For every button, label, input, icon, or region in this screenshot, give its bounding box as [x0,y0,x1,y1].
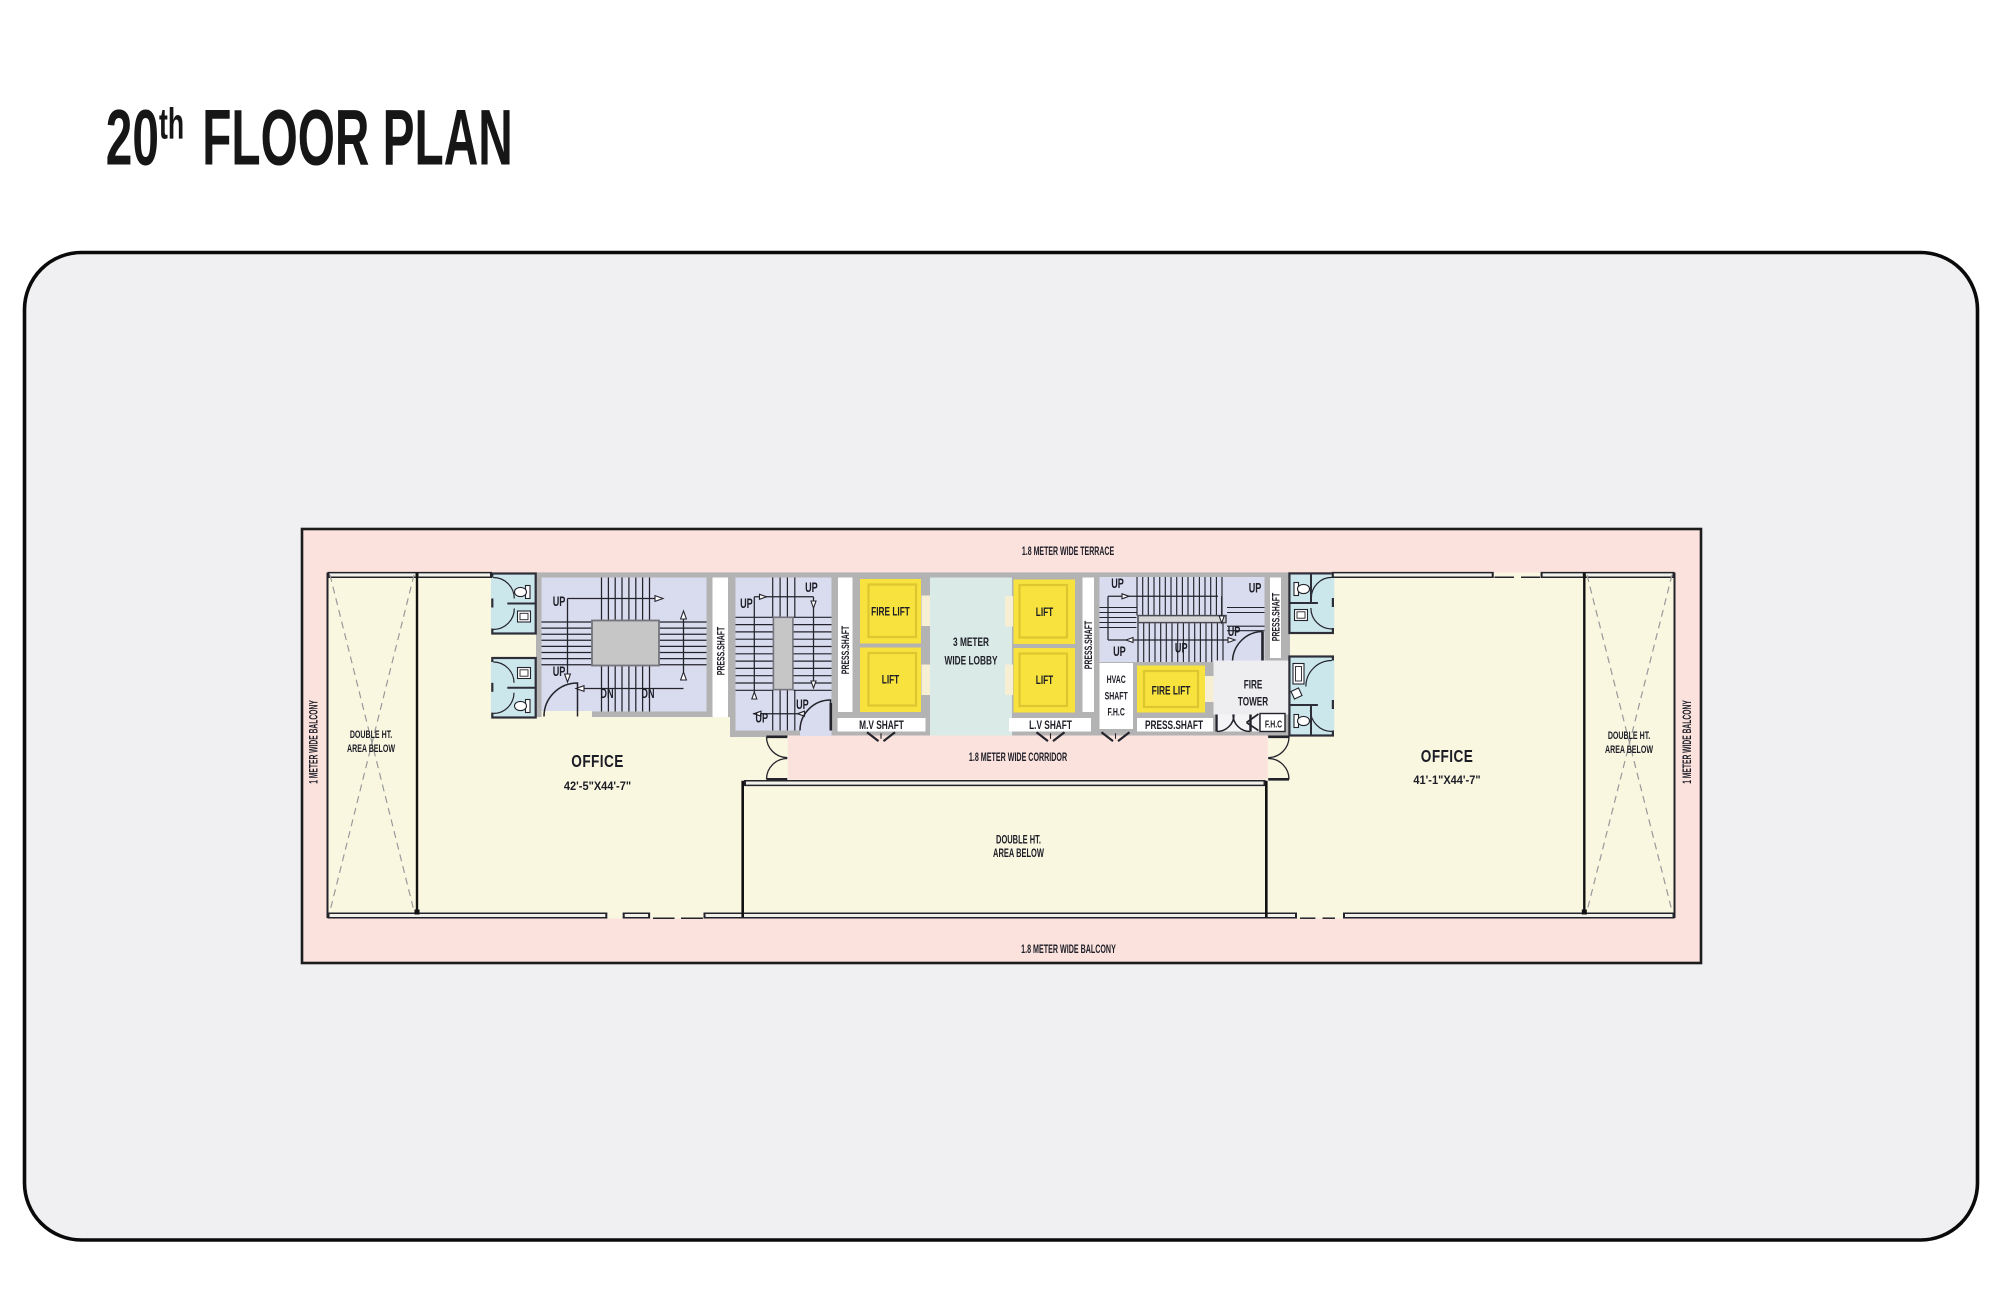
svg-text:OFFICE: OFFICE [1421,748,1473,767]
svg-text:1.8 METER WIDE BALCONY: 1.8 METER WIDE BALCONY [1021,943,1116,956]
svg-text:1 METER WIDE BALCONY: 1 METER WIDE BALCONY [307,700,320,784]
svg-text:FIRE LIFT: FIRE LIFT [871,606,910,619]
svg-text:1 METER WIDE BALCONY: 1 METER WIDE BALCONY [1680,700,1693,784]
svg-text:42'-5"X44'-7": 42'-5"X44'-7" [564,781,631,793]
svg-text:L.V SHAFT: L.V SHAFT [1029,720,1072,733]
svg-text:F.H.C: F.H.C [1265,718,1283,730]
svg-text:PRESS.SHAFT: PRESS.SHAFT [1083,620,1095,669]
svg-text:DOUBLE HT.: DOUBLE HT. [996,834,1041,847]
svg-text:PRESS.SHAFT: PRESS.SHAFT [1145,720,1204,733]
svg-text:41'-1"X44'-7": 41'-1"X44'-7" [1413,775,1480,787]
svg-text:UP: UP [755,710,768,727]
svg-text:WIDE LOBBY: WIDE LOBBY [945,655,998,668]
svg-text:SHAFT: SHAFT [1105,690,1128,702]
svg-text:UP: UP [805,579,818,596]
svg-text:AREA BELOW: AREA BELOW [347,742,395,755]
svg-text:FIRE LIFT: FIRE LIFT [1152,685,1191,698]
svg-text:UP: UP [1175,639,1188,656]
svg-text:DOUBLE HT.: DOUBLE HT. [350,728,392,741]
svg-text:HVAC: HVAC [1107,673,1126,685]
svg-text:UP: UP [553,593,566,610]
svg-text:PRESS.SHAFT: PRESS.SHAFT [715,626,727,675]
svg-text:UP: UP [1228,623,1241,640]
svg-text:UP: UP [740,595,753,612]
svg-text:UP: UP [1111,575,1124,592]
svg-text:DN: DN [600,685,613,702]
svg-text:PRESS.SHAFT: PRESS.SHAFT [840,625,852,674]
svg-text:DN: DN [641,685,654,702]
svg-text:UP: UP [796,696,809,713]
svg-text:DOUBLE HT.: DOUBLE HT. [1608,729,1650,742]
svg-text:UP: UP [553,663,566,680]
svg-text:UP: UP [1113,643,1126,660]
svg-text:PRESS.SHAFT: PRESS.SHAFT [1270,592,1282,641]
svg-text:3 METER: 3 METER [953,637,989,650]
svg-text:AREA BELOW: AREA BELOW [993,847,1044,860]
svg-text:LIFT: LIFT [882,674,900,687]
svg-text:1.8 METER WIDE TERRACE: 1.8 METER WIDE TERRACE [1022,545,1115,558]
svg-text:OFFICE: OFFICE [571,753,623,772]
svg-text:M.V SHAFT: M.V SHAFT [859,720,904,733]
svg-text:F.H.C: F.H.C [1108,706,1126,718]
svg-text:LIFT: LIFT [1036,675,1054,688]
svg-text:UP: UP [1249,579,1262,596]
svg-text:LIFT: LIFT [1036,607,1054,620]
svg-text:AREA BELOW: AREA BELOW [1605,743,1653,756]
svg-text:TOWER: TOWER [1238,696,1269,709]
svg-text:1.8 METER WIDE CORRIDOR: 1.8 METER WIDE CORRIDOR [969,751,1067,764]
svg-text:FIRE: FIRE [1244,679,1263,692]
